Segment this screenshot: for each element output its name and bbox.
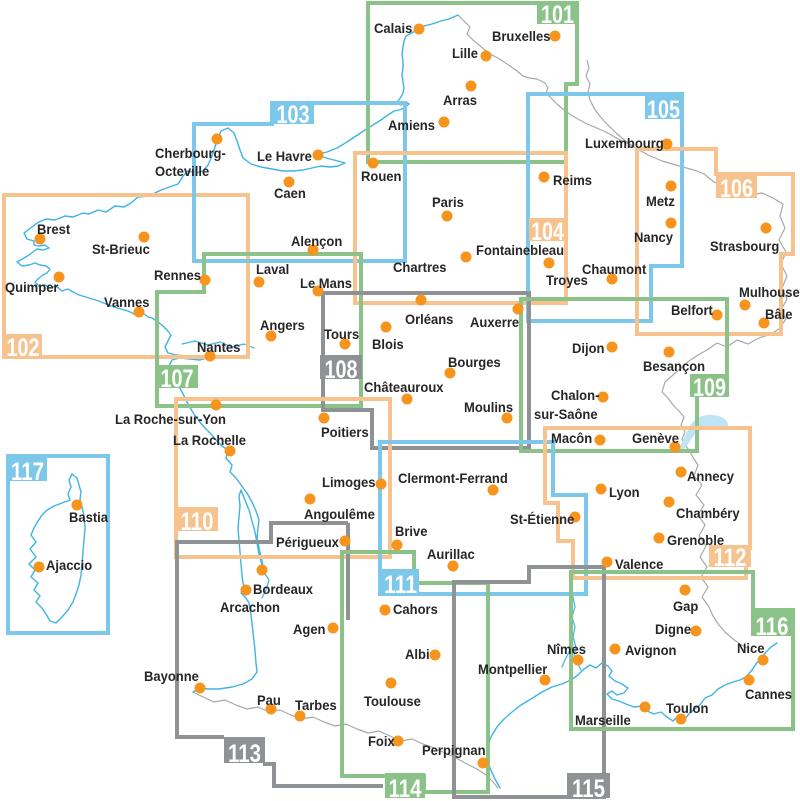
svg-text:Amiens: Amiens — [388, 117, 435, 133]
svg-text:Chalon-: Chalon- — [551, 387, 600, 403]
svg-text:Mulhouse: Mulhouse — [739, 284, 800, 300]
svg-text:Quimper: Quimper — [5, 279, 59, 295]
svg-text:Poitiers: Poitiers — [321, 424, 369, 440]
svg-text:St-Étienne: St-Étienne — [510, 511, 574, 527]
svg-text:Strasbourg: Strasbourg — [710, 238, 779, 254]
svg-text:Agen: Agen — [293, 621, 326, 637]
svg-text:St-Brieuc: St-Brieuc — [92, 241, 150, 257]
svg-text:Perpignan: Perpignan — [422, 742, 486, 758]
svg-text:Valence: Valence — [615, 556, 664, 572]
svg-text:Orléans: Orléans — [405, 311, 454, 327]
svg-text:Reims: Reims — [553, 172, 592, 188]
svg-text:Laval: Laval — [256, 261, 289, 277]
svg-text:102: 102 — [7, 334, 40, 362]
svg-text:Digne: Digne — [655, 621, 691, 637]
svg-text:Chambéry: Chambéry — [676, 505, 740, 521]
svg-text:Toulon: Toulon — [666, 700, 708, 716]
svg-text:Besançon: Besançon — [643, 358, 705, 374]
svg-text:Belfort: Belfort — [671, 302, 713, 318]
svg-text:Limoges: Limoges — [322, 474, 376, 490]
svg-text:Avignon: Avignon — [625, 642, 677, 658]
svg-text:Marseille: Marseille — [575, 712, 631, 728]
svg-text:Montpellier: Montpellier — [478, 661, 548, 677]
svg-text:Nîmes: Nîmes — [547, 641, 586, 657]
svg-text:Albi: Albi — [405, 646, 430, 662]
svg-text:Brive: Brive — [395, 523, 428, 539]
svg-text:Périgueux: Périgueux — [276, 534, 339, 550]
svg-text:Nantes: Nantes — [197, 339, 241, 355]
svg-text:Calais: Calais — [374, 20, 412, 36]
svg-text:Pau: Pau — [257, 692, 281, 708]
svg-text:Lille: Lille — [452, 45, 478, 61]
svg-text:Metz: Metz — [646, 193, 675, 209]
svg-text:Luxembourg: Luxembourg — [585, 135, 664, 151]
svg-text:101: 101 — [541, 1, 574, 29]
svg-text:116: 116 — [756, 613, 789, 641]
svg-text:Auxerre: Auxerre — [470, 314, 519, 330]
svg-text:Clermont-Ferrand: Clermont-Ferrand — [398, 470, 508, 486]
svg-text:Aurillac: Aurillac — [427, 546, 475, 562]
svg-text:Angers: Angers — [260, 317, 305, 333]
svg-text:Ajaccio: Ajaccio — [46, 557, 92, 573]
svg-text:Paris: Paris — [432, 194, 464, 210]
svg-text:112: 112 — [714, 544, 747, 572]
svg-text:Le Havre: Le Havre — [257, 148, 312, 164]
svg-text:Gap: Gap — [673, 598, 698, 614]
svg-text:Foix: Foix — [368, 733, 395, 749]
svg-text:Bruxelles: Bruxelles — [492, 28, 551, 44]
svg-text:Chartres: Chartres — [393, 259, 447, 275]
svg-text:Nice: Nice — [737, 640, 765, 656]
svg-text:113: 113 — [228, 740, 261, 768]
svg-text:Caen: Caen — [274, 185, 306, 201]
svg-text:Châteauroux: Châteauroux — [364, 379, 444, 395]
svg-text:109: 109 — [693, 374, 726, 402]
svg-text:103: 103 — [277, 101, 310, 129]
svg-text:Grenoble: Grenoble — [667, 532, 724, 548]
svg-text:Arcachon: Arcachon — [220, 599, 280, 615]
svg-text:La Roche-sur-Yon: La Roche-sur-Yon — [115, 411, 226, 427]
svg-text:107: 107 — [161, 365, 194, 393]
svg-text:Vannes: Vannes — [104, 294, 150, 310]
svg-text:Tours: Tours — [324, 326, 359, 342]
svg-text:Toulouse: Toulouse — [364, 693, 421, 709]
svg-text:Tarbes: Tarbes — [295, 697, 337, 713]
svg-text:sur-Saône: sur-Saône — [534, 406, 598, 422]
svg-text:115: 115 — [572, 775, 605, 801]
svg-text:Bastia: Bastia — [69, 509, 108, 525]
svg-text:Cherbourg-: Cherbourg- — [155, 145, 226, 161]
svg-text:Genève: Genève — [632, 430, 679, 446]
svg-text:Annecy: Annecy — [687, 468, 734, 484]
svg-text:117: 117 — [11, 458, 44, 486]
svg-text:Nancy: Nancy — [634, 229, 673, 245]
svg-text:Cannes: Cannes — [745, 686, 792, 702]
svg-text:Cahors: Cahors — [393, 601, 438, 617]
svg-text:114: 114 — [389, 775, 422, 801]
svg-text:111: 111 — [384, 571, 417, 599]
svg-text:108: 108 — [325, 356, 358, 384]
svg-text:Lyon: Lyon — [609, 484, 640, 500]
svg-text:Dijon: Dijon — [572, 340, 605, 356]
svg-text:110: 110 — [181, 508, 214, 536]
svg-text:Arras: Arras — [443, 92, 477, 108]
svg-text:Fontainebleau: Fontainebleau — [476, 242, 564, 258]
svg-text:Alençon: Alençon — [291, 233, 342, 249]
svg-text:Angoulême: Angoulême — [304, 506, 375, 522]
svg-text:Brest: Brest — [37, 221, 71, 237]
svg-text:Bordeaux: Bordeaux — [253, 581, 313, 597]
svg-text:Bâle: Bâle — [765, 306, 793, 322]
svg-text:La Rochelle: La Rochelle — [173, 432, 246, 448]
svg-text:Bayonne: Bayonne — [144, 668, 199, 684]
svg-text:Macôn: Macôn — [551, 430, 592, 446]
svg-text:Rouen: Rouen — [361, 168, 402, 184]
svg-text:Le Mans: Le Mans — [300, 275, 352, 291]
svg-text:Rennes: Rennes — [154, 267, 201, 283]
svg-text:105: 105 — [647, 96, 680, 124]
svg-text:106: 106 — [720, 175, 753, 203]
svg-text:Blois: Blois — [372, 336, 404, 352]
svg-text:Octeville: Octeville — [155, 163, 209, 179]
svg-text:Chaumont: Chaumont — [582, 261, 647, 277]
svg-text:Bourges: Bourges — [448, 354, 501, 370]
svg-text:Moulins: Moulins — [464, 399, 513, 415]
